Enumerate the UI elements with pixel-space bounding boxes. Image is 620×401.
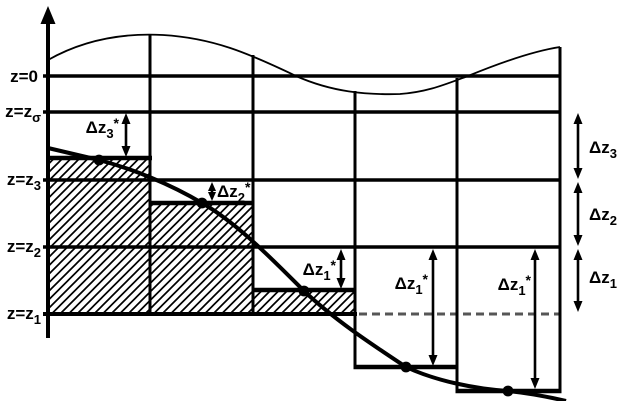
hatch-rect-col2 (152, 205, 252, 312)
free-surface-curve (48, 35, 560, 95)
arrowhead-up-icon (531, 249, 540, 260)
arrowhead-down-icon (574, 168, 583, 179)
arrowhead-down-icon (337, 278, 346, 289)
arrow-dz1-star-col3 (337, 249, 346, 289)
label-z3: z=z3 (7, 170, 41, 193)
arrowhead-down-icon (531, 378, 540, 389)
label-dz2: Δz2 (589, 205, 617, 228)
arrowhead-up-icon (208, 182, 216, 191)
arrow-dz2 (574, 182, 583, 246)
arrow-dz3-star (122, 113, 131, 157)
midpoint-dot-1 (94, 155, 105, 166)
label-dz1-star-col4: Δz1* (395, 271, 429, 297)
arrow-dz3 (574, 113, 583, 179)
label-dz1-star-col3: Δz1* (303, 257, 337, 283)
axis-arrowhead-icon (41, 6, 56, 24)
sigma-level-diagram: z=0 z=zσ z=z3 z=z2 z=z1 Δz3* Δz2* Δz1* Δ… (0, 0, 620, 401)
label-z1: z=z1 (7, 304, 41, 327)
midpoint-dot-3 (299, 286, 310, 297)
arrowhead-up-icon (574, 182, 583, 193)
label-dz1: Δz1 (589, 268, 617, 291)
arrowhead-up-icon (429, 249, 438, 260)
arrowhead-down-icon (574, 301, 583, 312)
arrowhead-up-icon (337, 249, 346, 260)
label-z2: z=z2 (7, 237, 41, 260)
arrowhead-down-icon (574, 235, 583, 246)
right-measure-arrows (574, 113, 583, 312)
arrow-dz1-star-col5 (531, 249, 540, 389)
arrow-dz2-star (208, 182, 216, 201)
arrow-dz1-star-col4 (429, 249, 438, 366)
arrow-dz1 (574, 249, 583, 312)
label-z-sigma: z=zσ (5, 102, 41, 125)
label-dz3: Δz3 (589, 138, 617, 161)
midpoint-dot-4 (401, 362, 412, 373)
midpoint-dot-2 (197, 198, 208, 209)
hatch-rect-col1 (50, 160, 149, 312)
arrowhead-down-icon (208, 192, 216, 201)
arrowhead-up-icon (574, 249, 583, 260)
label-dz3-star: Δz3* (86, 115, 120, 141)
label-z0: z=0 (10, 67, 38, 86)
arrowhead-up-icon (574, 113, 583, 124)
label-dz1-star-col5: Δz1* (498, 272, 532, 298)
midpoint-dot-5 (503, 386, 514, 397)
arrowhead-up-icon (122, 113, 131, 124)
figure-canvas: z=0 z=zσ z=z3 z=z2 z=z1 Δz3* Δz2* Δz1* Δ… (0, 0, 620, 401)
arrowhead-down-icon (429, 355, 438, 366)
arrowhead-down-icon (122, 146, 131, 157)
